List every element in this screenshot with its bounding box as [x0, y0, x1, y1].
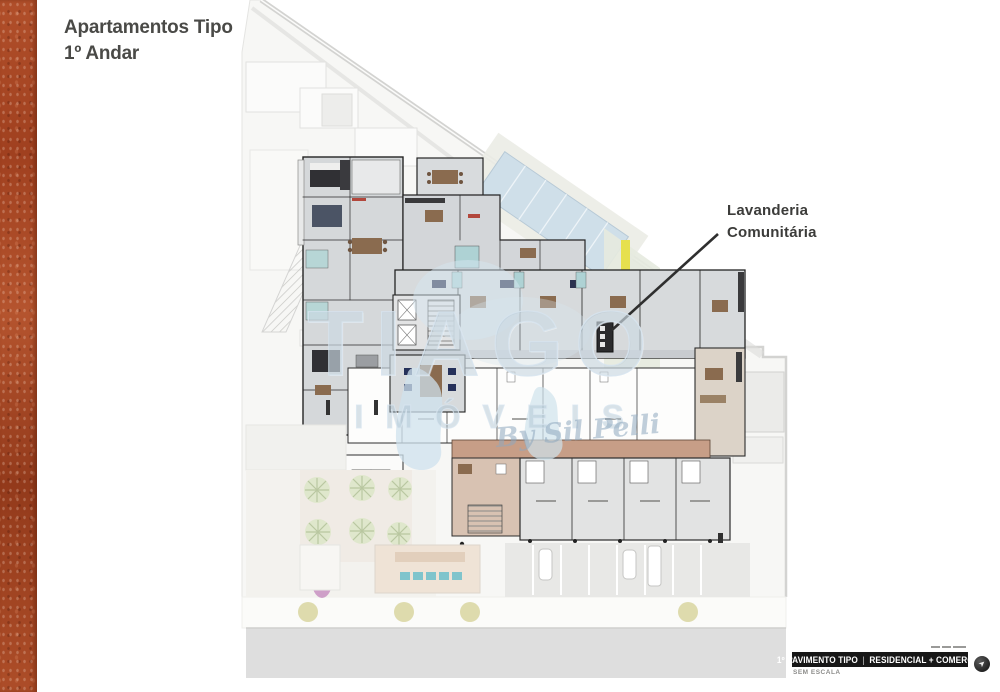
page-title: Apartamentos Tipo 1º Andar: [64, 14, 233, 66]
page-title-line2: 1º Andar: [64, 40, 233, 66]
terracotta-accent-border: [0, 0, 37, 692]
floor-plan-canvas: [0, 0, 1000, 692]
page-title-line1: Apartamentos Tipo: [64, 14, 233, 40]
sheet-title-bar: 1º PAVIMENTO TIPO | RESIDENCIAL + COMERC…: [792, 652, 968, 667]
scale-note: SEM ESCALA: [793, 669, 841, 676]
micro-caption-marks: [931, 646, 966, 648]
sheet-title-right: RESIDENCIAL + COMERCIO: [870, 655, 983, 665]
sheet-title-divider: |: [863, 655, 865, 665]
laundry-room: [597, 322, 613, 352]
laundry-callout-line2: Comunitária: [727, 222, 817, 244]
sheet-title-left: 1º PAVIMENTO TIPO: [777, 655, 858, 665]
laundry-callout-line1: Lavanderia: [727, 200, 817, 222]
parking-area: [505, 543, 750, 597]
sidewalk: [242, 597, 786, 628]
compass-north-icon: ➤: [974, 656, 990, 672]
street-road: [246, 628, 786, 678]
laundry-callout-label: Lavanderia Comunitária: [727, 200, 817, 244]
